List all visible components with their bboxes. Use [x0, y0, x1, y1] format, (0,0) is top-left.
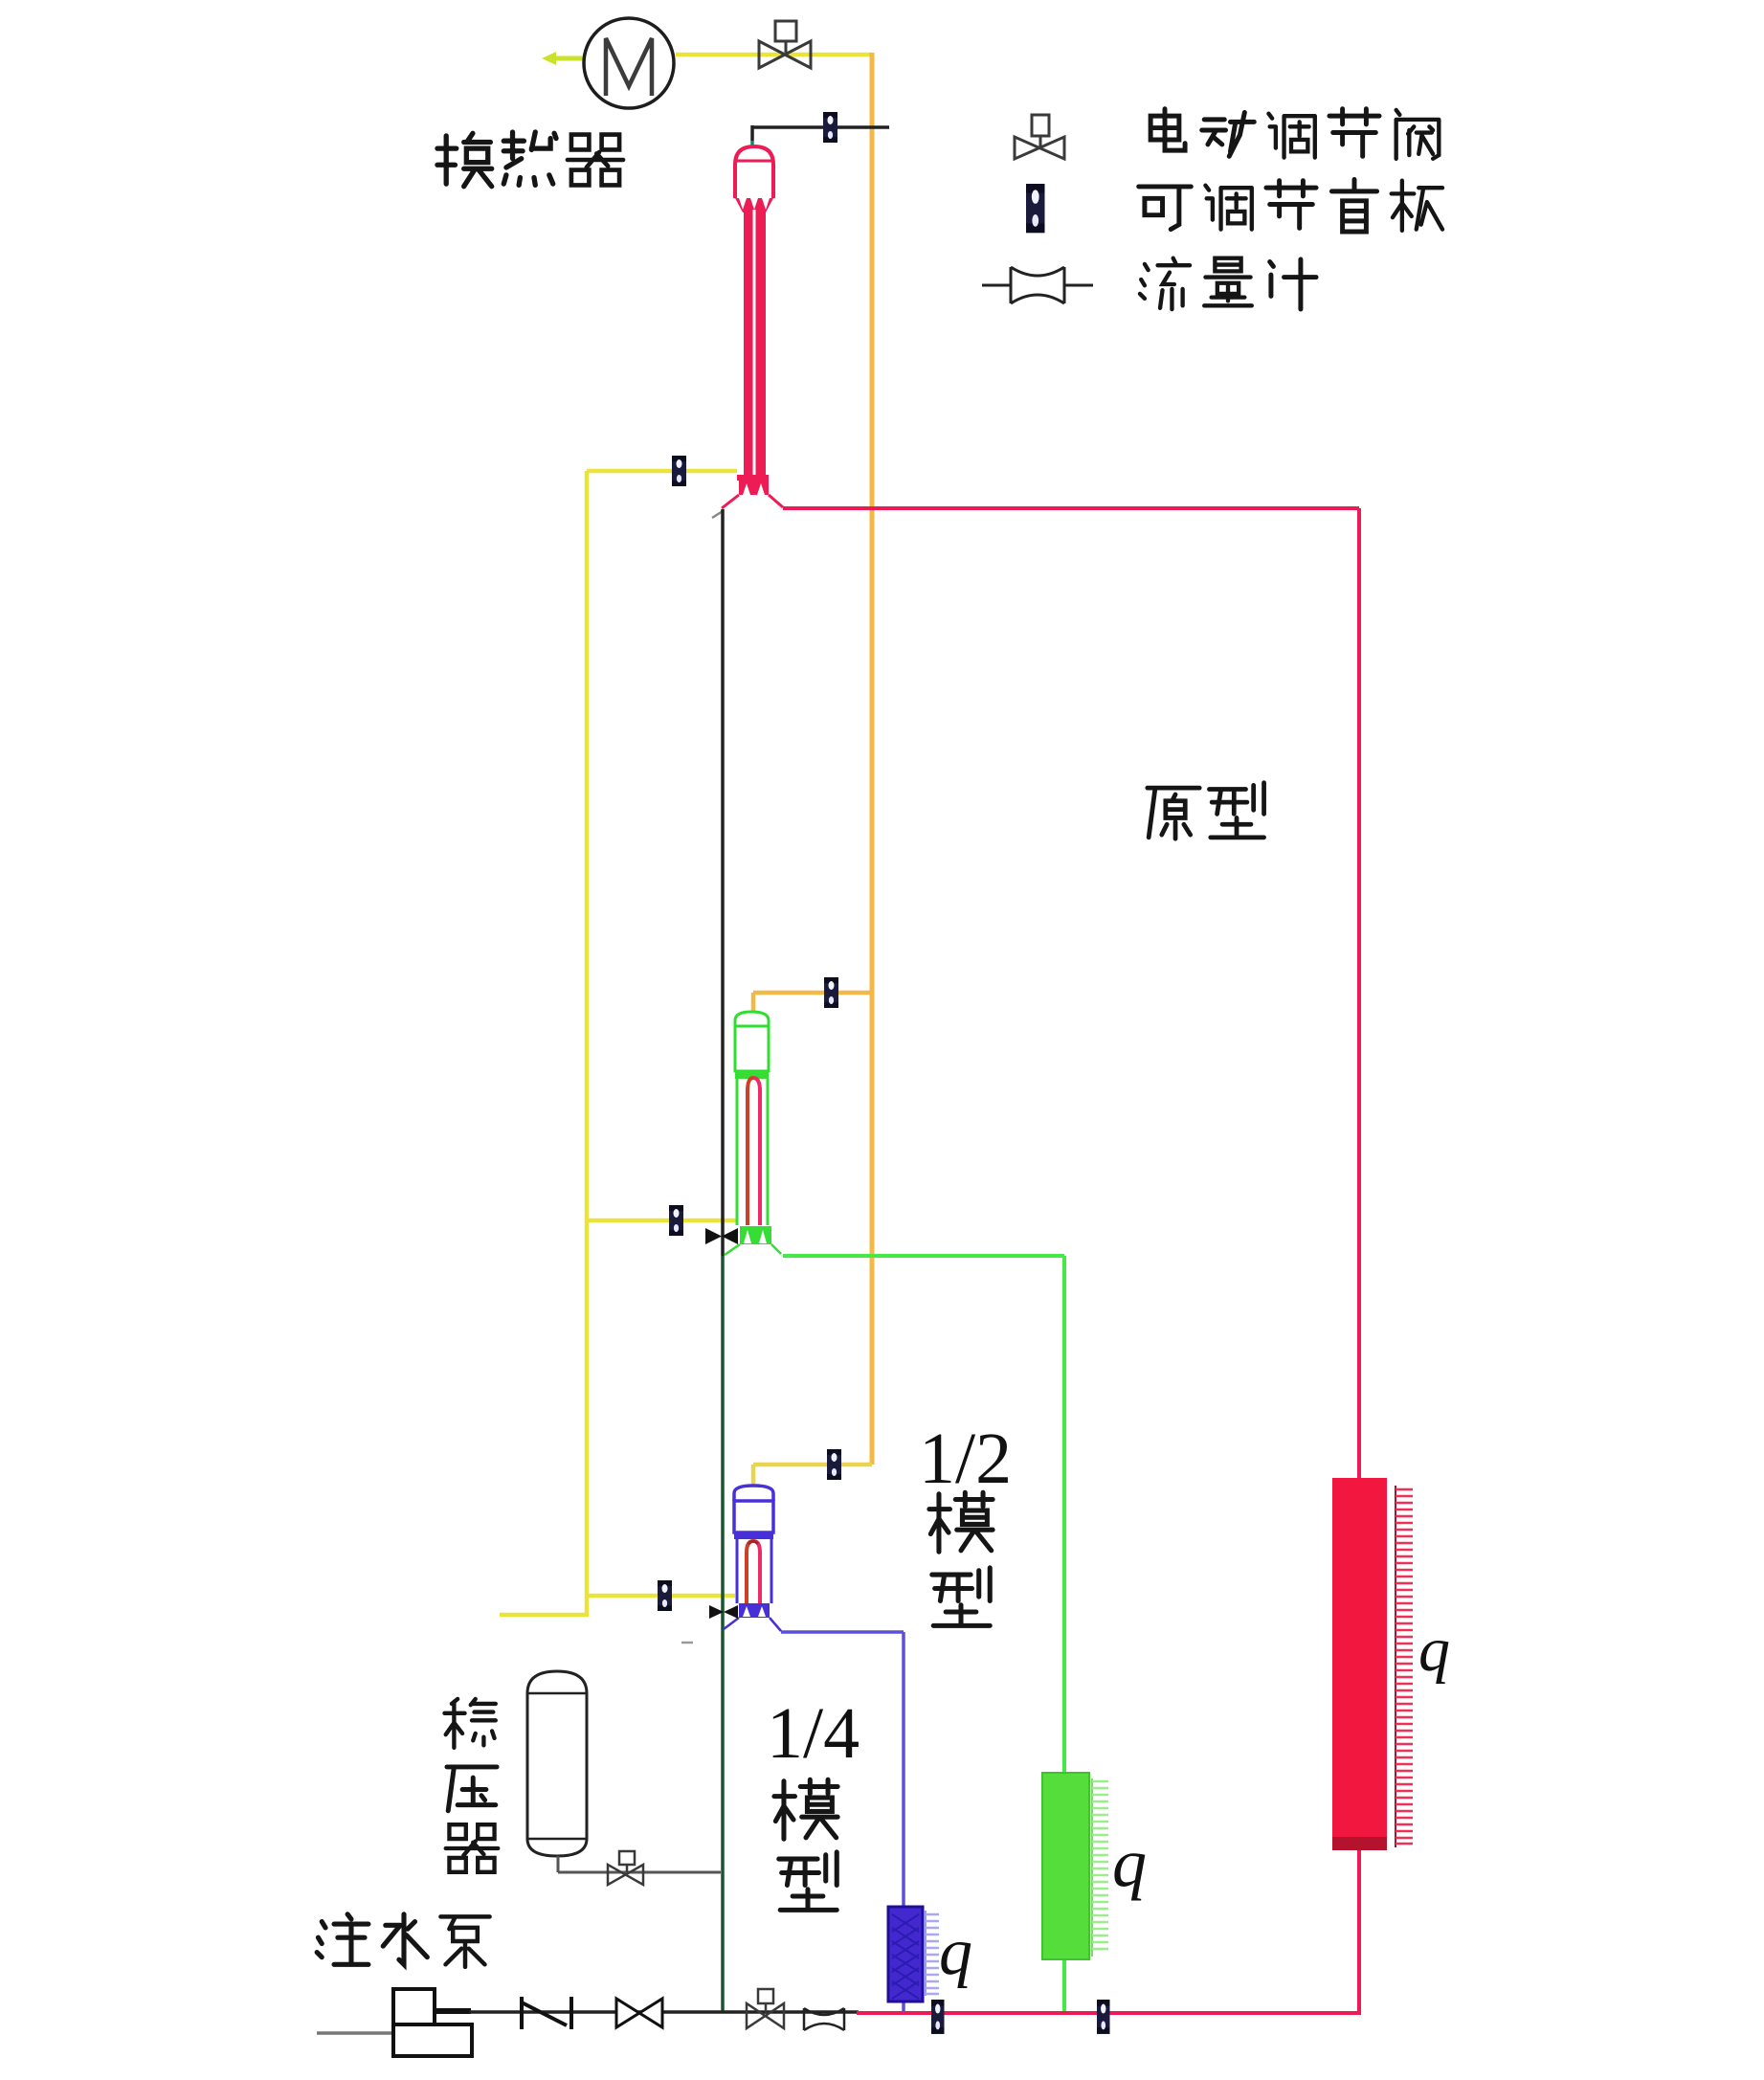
- svg-text:q: q: [1418, 1615, 1450, 1685]
- svg-text:1/2: 1/2: [919, 1419, 1012, 1499]
- svg-text:q: q: [1112, 1824, 1147, 1901]
- svg-text:1/4: 1/4: [767, 1693, 860, 1774]
- svg-text:q: q: [939, 1915, 972, 1989]
